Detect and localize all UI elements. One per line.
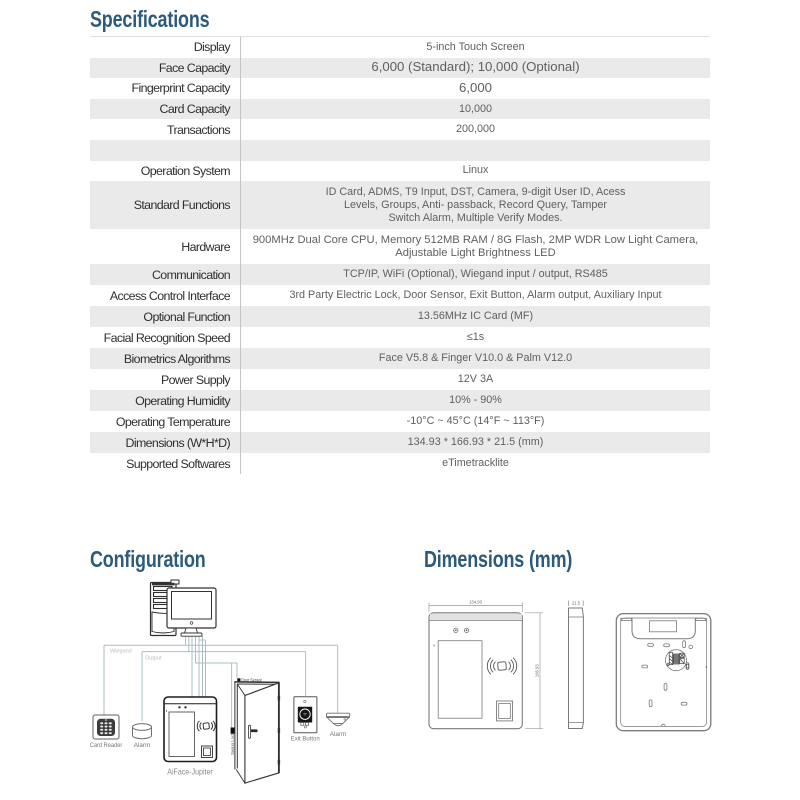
svg-text:21.5: 21.5 bbox=[572, 601, 581, 606]
svg-text:Alarm: Alarm bbox=[330, 731, 347, 738]
svg-text:Output: Output bbox=[145, 656, 162, 662]
svg-text:Card Reader: Card Reader bbox=[90, 742, 123, 749]
svg-text:Swing Lock: Swing Lock bbox=[230, 732, 235, 755]
svg-text:Alarm: Alarm bbox=[134, 742, 151, 749]
svg-text:AiFace-Jupiter: AiFace-Jupiter bbox=[167, 767, 213, 777]
svg-text:Exit Button: Exit Button bbox=[291, 735, 320, 742]
svg-text:Door Sensor: Door Sensor bbox=[241, 678, 262, 684]
svg-text:134.93: 134.93 bbox=[469, 600, 482, 605]
svg-text:Wiegand: Wiegand bbox=[110, 649, 132, 655]
svg-text:166.93: 166.93 bbox=[535, 664, 540, 677]
